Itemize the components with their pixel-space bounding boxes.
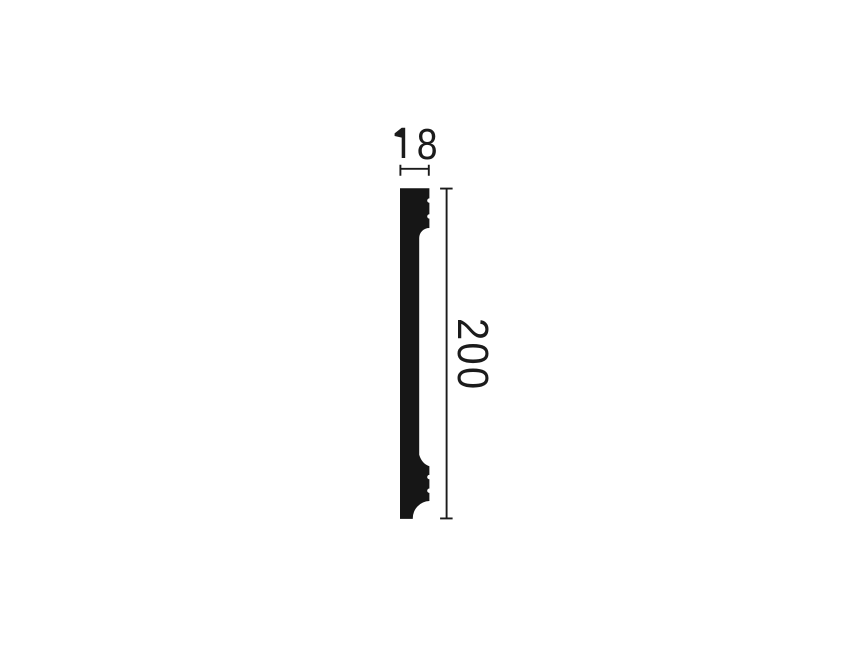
- svg-text:8: 8: [417, 119, 438, 169]
- svg-text:200: 200: [448, 318, 497, 391]
